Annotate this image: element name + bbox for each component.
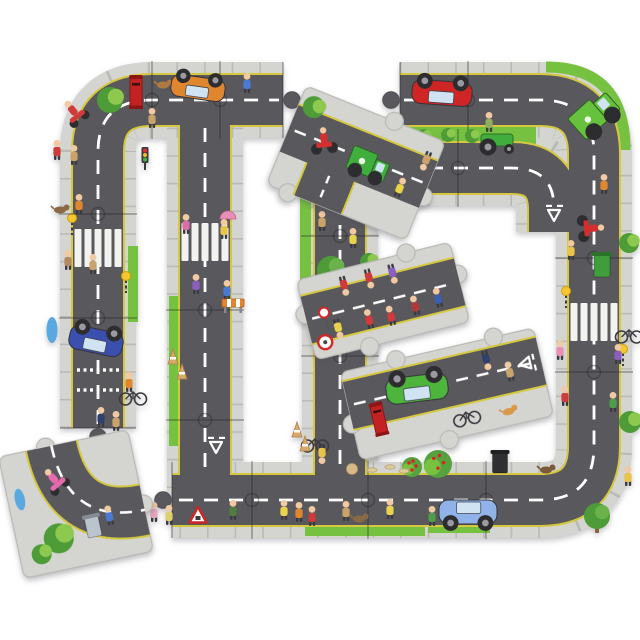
apple-bush [424,450,452,478]
puzzle-product-photo [0,0,640,640]
blue-bollard [47,317,58,343]
bone [385,465,395,469]
green-wheelie-bin [592,252,612,277]
bone [399,469,409,473]
apple-bush [402,457,422,477]
bone [367,468,377,472]
red-postbox [129,75,143,109]
puzzle-scene-svg [0,0,640,640]
rock [347,464,358,475]
bush [619,411,640,433]
black-bin [491,450,510,473]
